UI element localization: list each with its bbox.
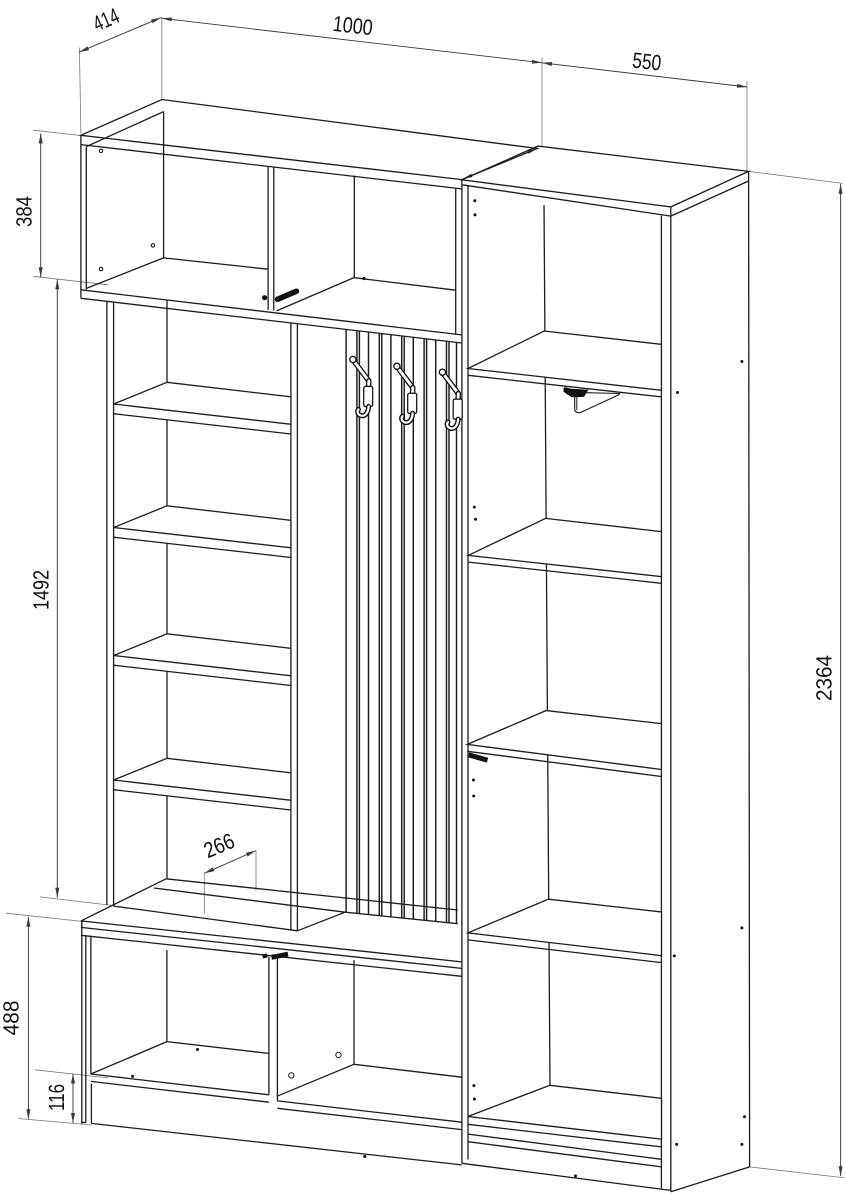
svg-text:1000: 1000 (332, 11, 375, 40)
svg-text:1492: 1492 (29, 570, 54, 610)
svg-text:384: 384 (12, 196, 37, 227)
svg-text:488: 488 (0, 1001, 24, 1036)
svg-text:2364: 2364 (812, 655, 837, 701)
svg-text:550: 550 (631, 47, 663, 75)
svg-text:116: 116 (44, 1084, 69, 1111)
